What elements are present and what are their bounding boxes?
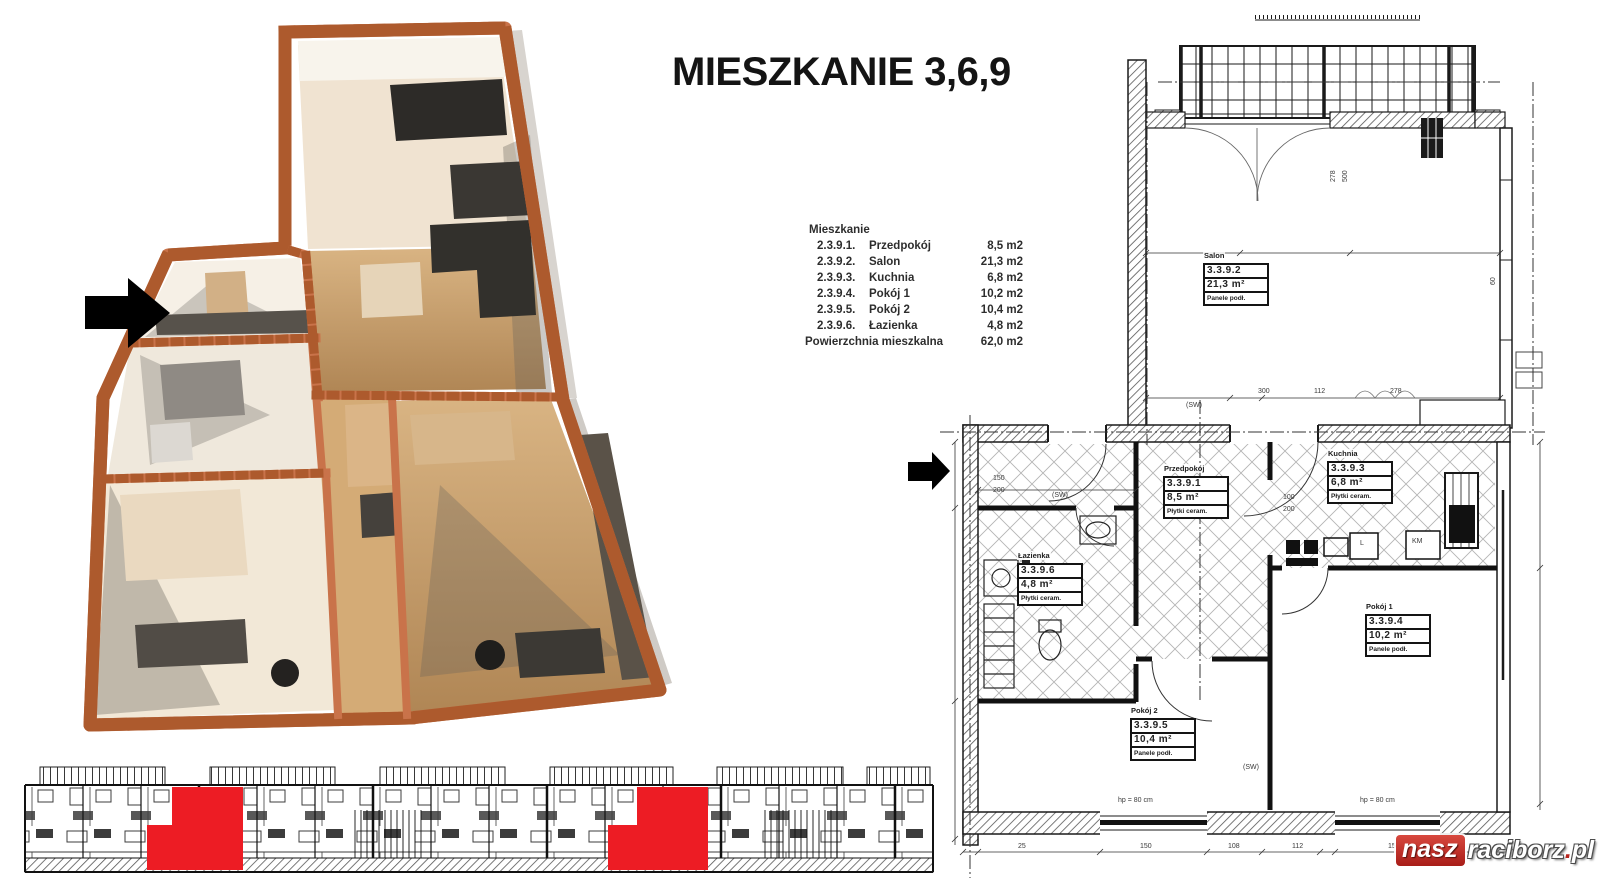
room-list-row: 2.3.9.1.Przedpokój8,5 m2 (805, 238, 1023, 254)
room-list-row: 2.3.9.5.Pokój 210,4 m2 (805, 302, 1023, 318)
room-list-row: 2.3.9.3.Kuchnia6,8 m2 (805, 270, 1023, 286)
room-list: Mieszkanie 2.3.9.1.Przedpokój8,5 m22.3.9… (805, 222, 1023, 350)
watermark-main: raciborz (1468, 836, 1565, 865)
room-list-footer-label: Powierzchnia mieszkalna (805, 334, 969, 350)
room-list-footer-value: 62,0 m2 (969, 334, 1023, 350)
room-list-row: 2.3.9.4.Pokój 110,2 m2 (805, 286, 1023, 302)
room-list-header: Mieszkanie (809, 222, 1023, 238)
watermark-suffix: pl (1572, 836, 1594, 865)
page: MIESZKANIE 3,6,9 Mieszkanie 2.3.9.1.Prze… (0, 0, 1600, 882)
room-list-rows: 2.3.9.1.Przedpokój8,5 m22.3.9.2.Salon21,… (805, 238, 1023, 334)
building-strip-plan (5, 755, 935, 880)
watermark-logo: naszraciborz.pl (1396, 835, 1594, 866)
room-list-row: 2.3.9.6.Łazienka4,8 m2 (805, 318, 1023, 334)
arrow-right-icon (908, 452, 950, 490)
room-list-footer: Powierzchnia mieszkalna 62,0 m2 (805, 334, 1023, 350)
watermark-dot: . (1565, 836, 1572, 865)
apartment-3d-render (60, 15, 700, 740)
watermark-prefix: nasz (1396, 835, 1465, 866)
page-title: MIESZKANIE 3,6,9 (672, 50, 1011, 95)
room-list-row: 2.3.9.2.Salon21,3 m2 (805, 254, 1023, 270)
technical-floor-plan (900, 0, 1600, 882)
